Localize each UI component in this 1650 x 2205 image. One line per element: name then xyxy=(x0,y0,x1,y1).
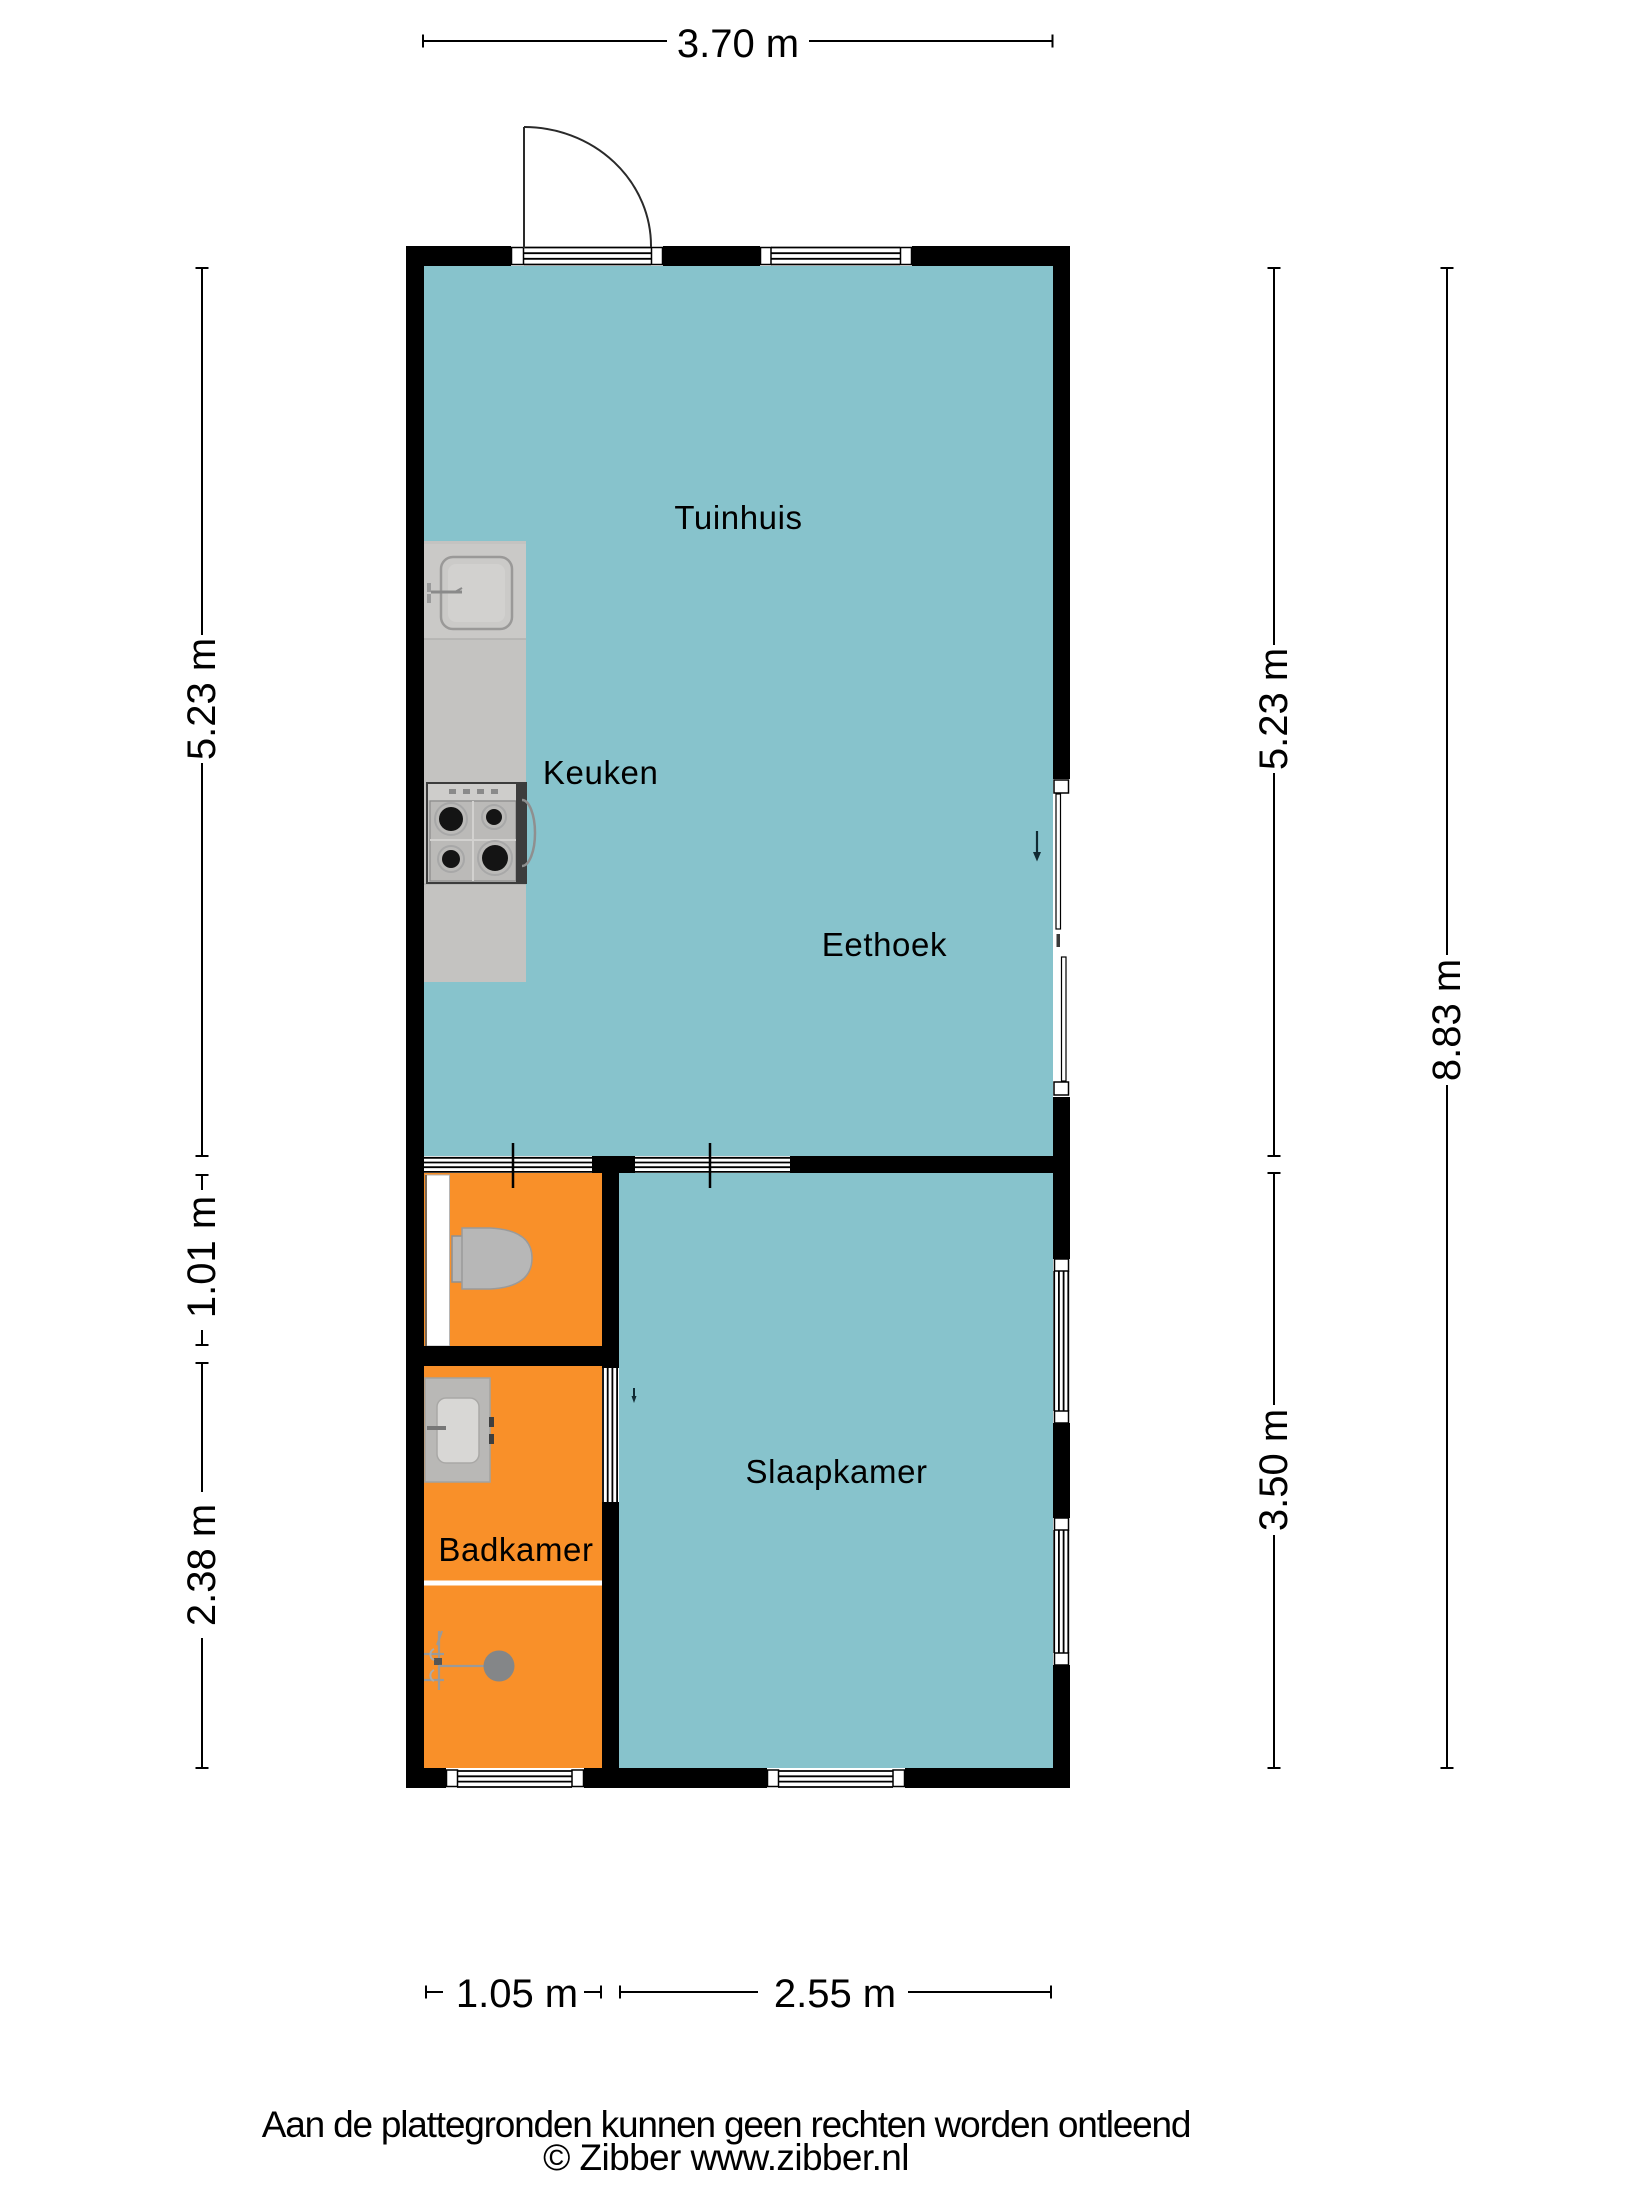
svg-text:Slaapkamer: Slaapkamer xyxy=(746,1453,928,1490)
svg-text:1.05 m: 1.05 m xyxy=(456,1972,578,2016)
svg-text:© Zibber www.zibber.nl: © Zibber www.zibber.nl xyxy=(543,2137,909,2178)
svg-text:5.23 m: 5.23 m xyxy=(1252,648,1296,770)
svg-text:1.01 m: 1.01 m xyxy=(180,1196,224,1318)
svg-text:Badkamer: Badkamer xyxy=(438,1531,593,1568)
svg-text:3.50 m: 3.50 m xyxy=(1252,1409,1296,1531)
svg-text:Eethoek: Eethoek xyxy=(822,926,947,963)
svg-text:5.23 m: 5.23 m xyxy=(180,638,224,760)
svg-text:3.70 m: 3.70 m xyxy=(677,22,799,66)
svg-text:2.55 m: 2.55 m xyxy=(774,1972,896,2016)
svg-text:Keuken: Keuken xyxy=(543,754,659,791)
svg-text:2.38 m: 2.38 m xyxy=(180,1504,224,1626)
svg-text:8.83 m: 8.83 m xyxy=(1425,959,1469,1081)
svg-text:Tuinhuis: Tuinhuis xyxy=(674,499,802,536)
